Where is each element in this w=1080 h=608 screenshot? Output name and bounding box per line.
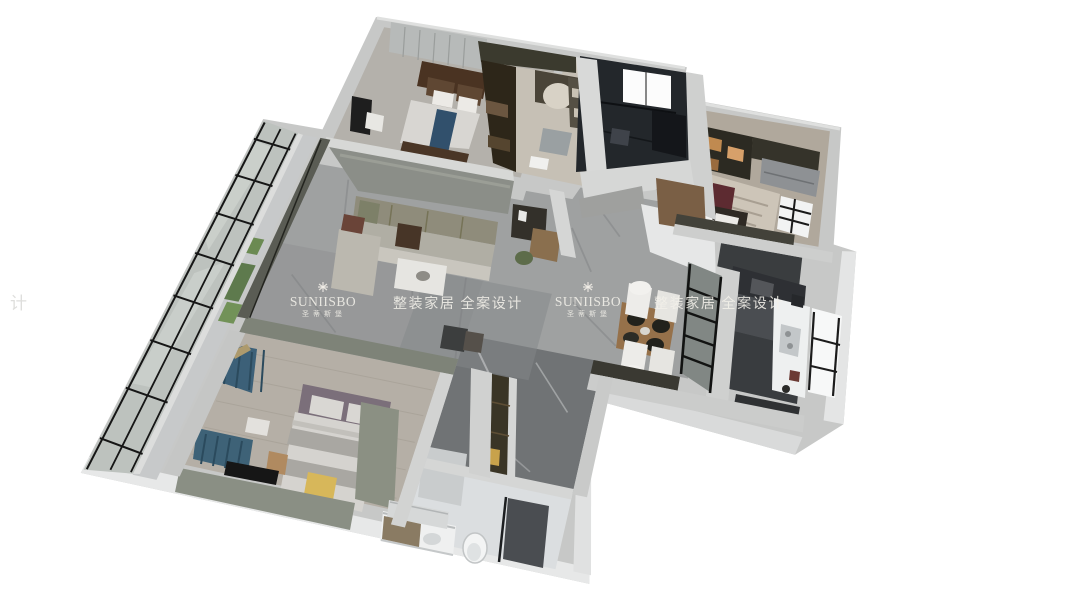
svg-text:计: 计	[10, 294, 27, 313]
svg-text:SUNIISBO: SUNIISBO	[555, 294, 621, 309]
svg-text:整装家居 全案设计: 整装家居 全案设计	[393, 295, 523, 312]
svg-text:整装家居 全案设计: 整装家居 全案设计	[654, 295, 784, 312]
svg-text:圣蒂斯堡: 圣蒂斯堡	[567, 309, 611, 318]
svg-text:圣蒂斯堡: 圣蒂斯堡	[302, 309, 346, 318]
svg-text:SUNIISBO: SUNIISBO	[290, 294, 356, 309]
